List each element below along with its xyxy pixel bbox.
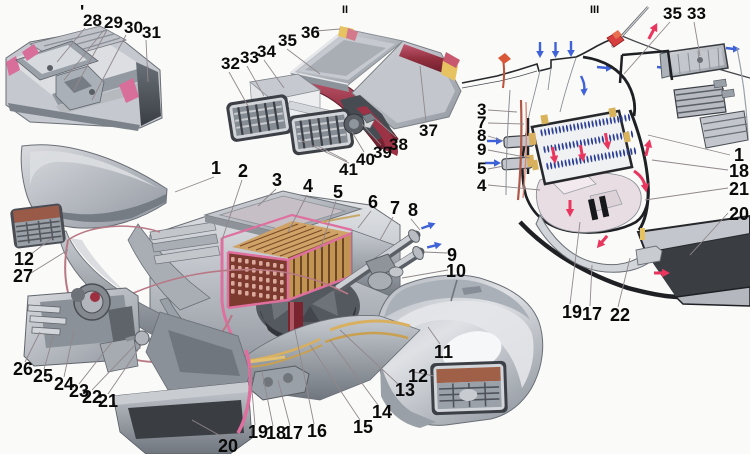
svg-text:2: 2 [238, 161, 248, 181]
svg-text:34: 34 [257, 42, 276, 61]
svg-text:25: 25 [33, 366, 53, 386]
svg-text:22: 22 [610, 305, 630, 325]
svg-text:10: 10 [446, 261, 466, 281]
svg-text:31: 31 [142, 23, 161, 42]
svg-text:15: 15 [353, 417, 373, 437]
svg-text:19: 19 [248, 422, 268, 442]
svg-text:4: 4 [303, 176, 313, 196]
svg-text:21: 21 [729, 179, 749, 199]
svg-text:33: 33 [687, 4, 706, 23]
svg-text:21: 21 [98, 391, 118, 411]
svg-text:30: 30 [124, 18, 143, 37]
svg-text:40: 40 [356, 150, 375, 169]
svg-text:8: 8 [408, 200, 418, 220]
svg-text:III: III [590, 4, 599, 16]
svg-text:29: 29 [104, 13, 123, 32]
svg-text:3: 3 [272, 170, 282, 190]
svg-text:11: 11 [434, 342, 453, 362]
svg-text:20: 20 [218, 436, 238, 454]
svg-text:35: 35 [663, 4, 682, 23]
svg-text:13: 13 [395, 380, 415, 400]
svg-text:19: 19 [562, 302, 582, 322]
svg-text:4: 4 [477, 176, 487, 195]
svg-text:7: 7 [390, 198, 400, 218]
svg-text:28: 28 [83, 11, 102, 30]
svg-text:9: 9 [477, 140, 486, 159]
svg-text:14: 14 [372, 402, 392, 422]
svg-text:26: 26 [13, 359, 33, 379]
svg-text:16: 16 [307, 421, 327, 441]
svg-text:6: 6 [368, 192, 378, 212]
svg-text:36: 36 [301, 23, 320, 42]
svg-text:39: 39 [373, 143, 392, 162]
svg-text:20: 20 [729, 204, 749, 224]
svg-text:1: 1 [211, 158, 221, 178]
svg-text:27: 27 [13, 266, 33, 286]
svg-text:18: 18 [266, 423, 286, 443]
svg-text:32: 32 [221, 54, 240, 73]
svg-text:41: 41 [339, 160, 358, 179]
svg-text:II: II [342, 4, 348, 16]
svg-text:37: 37 [419, 121, 438, 140]
svg-text:18: 18 [729, 161, 749, 181]
svg-text:17: 17 [582, 304, 602, 324]
svg-text:5: 5 [333, 182, 343, 202]
svg-text:35: 35 [278, 31, 297, 50]
